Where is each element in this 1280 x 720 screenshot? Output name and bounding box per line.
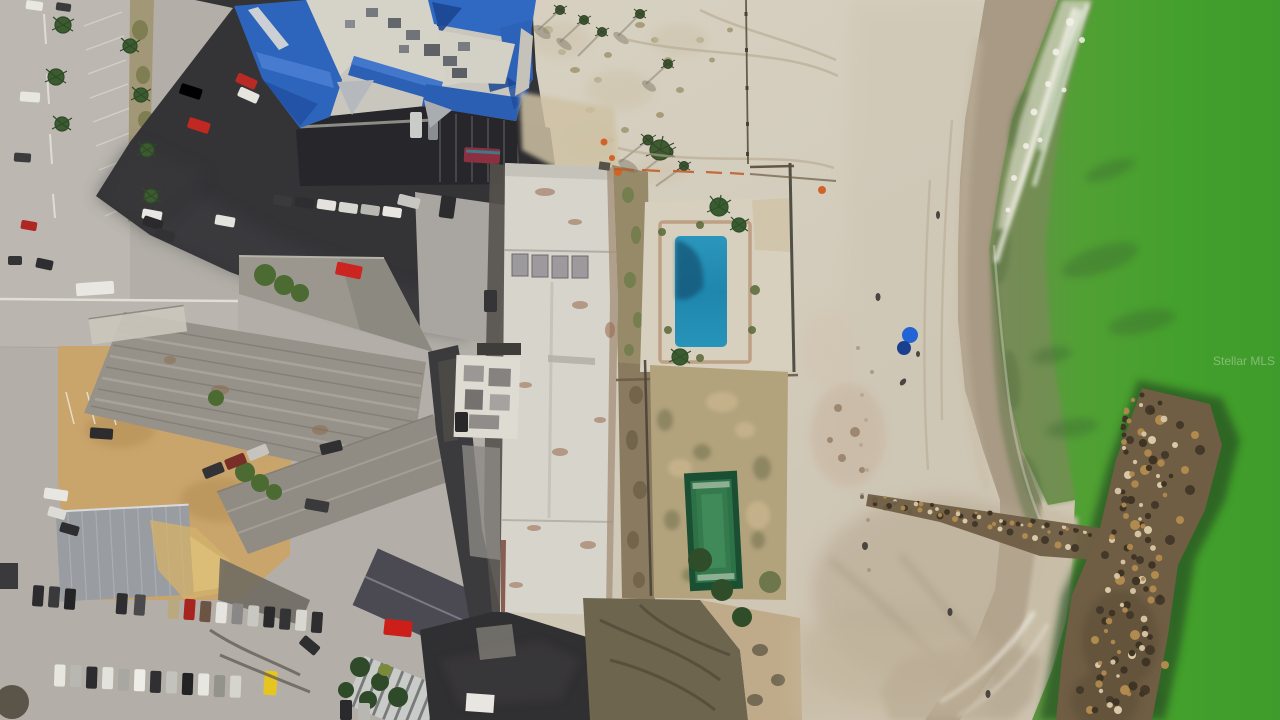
svg-text:Stellar MLS: Stellar MLS [1213, 354, 1275, 368]
